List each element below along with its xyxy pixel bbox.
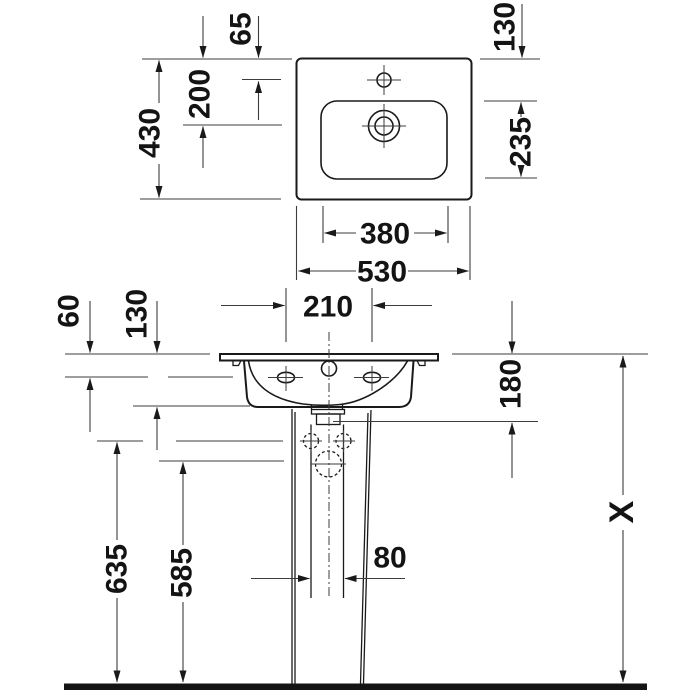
dim-530: 530: [299, 256, 469, 289]
dim-label-235: 235: [505, 117, 538, 167]
dim-label-585: 585: [166, 548, 199, 598]
washbasin-technical-drawing: 430 200 65 130 235 380: [0, 0, 700, 700]
faucet-hole-top: [367, 65, 401, 95]
dim-130-front: 130: [121, 289, 158, 450]
dim-label-130-front: 130: [121, 289, 154, 339]
technical-drawing-page: 430 200 65 130 235 380: [0, 0, 700, 700]
dim-130-top: 130: [489, 2, 523, 58]
dim-label-530: 530: [357, 256, 407, 289]
dim-635: 635: [101, 443, 134, 683]
dim-65: 65: [225, 12, 259, 120]
dim-label-210: 210: [303, 291, 353, 324]
dim-180: 180: [495, 301, 528, 478]
pedestal-front: [292, 409, 371, 684]
dim-x: X: [603, 356, 641, 682]
dim-60: 60: [53, 294, 91, 432]
top-view: 430 200 65 130 235 380: [134, 2, 541, 289]
dim-label-80: 80: [373, 542, 406, 575]
drain-hole-top: [362, 104, 406, 148]
dim-200: 200: [184, 16, 217, 168]
dim-label-130-top: 130: [489, 2, 522, 52]
dim-label-430: 430: [134, 108, 167, 158]
bowl-curve-front: [249, 361, 408, 405]
pedestal-fixing-holes: [300, 430, 355, 452]
dim-380: 380: [325, 218, 447, 251]
dim-label-x: X: [603, 500, 641, 523]
dim-label-635: 635: [101, 544, 134, 594]
dim-label-60: 60: [53, 294, 86, 327]
dim-585: 585: [166, 463, 199, 683]
front-view: 60 130 210 180 X 635: [53, 288, 649, 690]
dim-430: 430: [134, 61, 167, 198]
floor-line: [64, 684, 647, 691]
dim-label-65: 65: [225, 12, 258, 45]
dim-label-380: 380: [360, 218, 410, 251]
fixing-hole-left: [268, 366, 303, 391]
dim-210: 210: [221, 291, 432, 324]
dim-235: 235: [505, 103, 538, 177]
dim-label-180: 180: [495, 359, 528, 409]
dim-label-200: 200: [184, 69, 217, 119]
